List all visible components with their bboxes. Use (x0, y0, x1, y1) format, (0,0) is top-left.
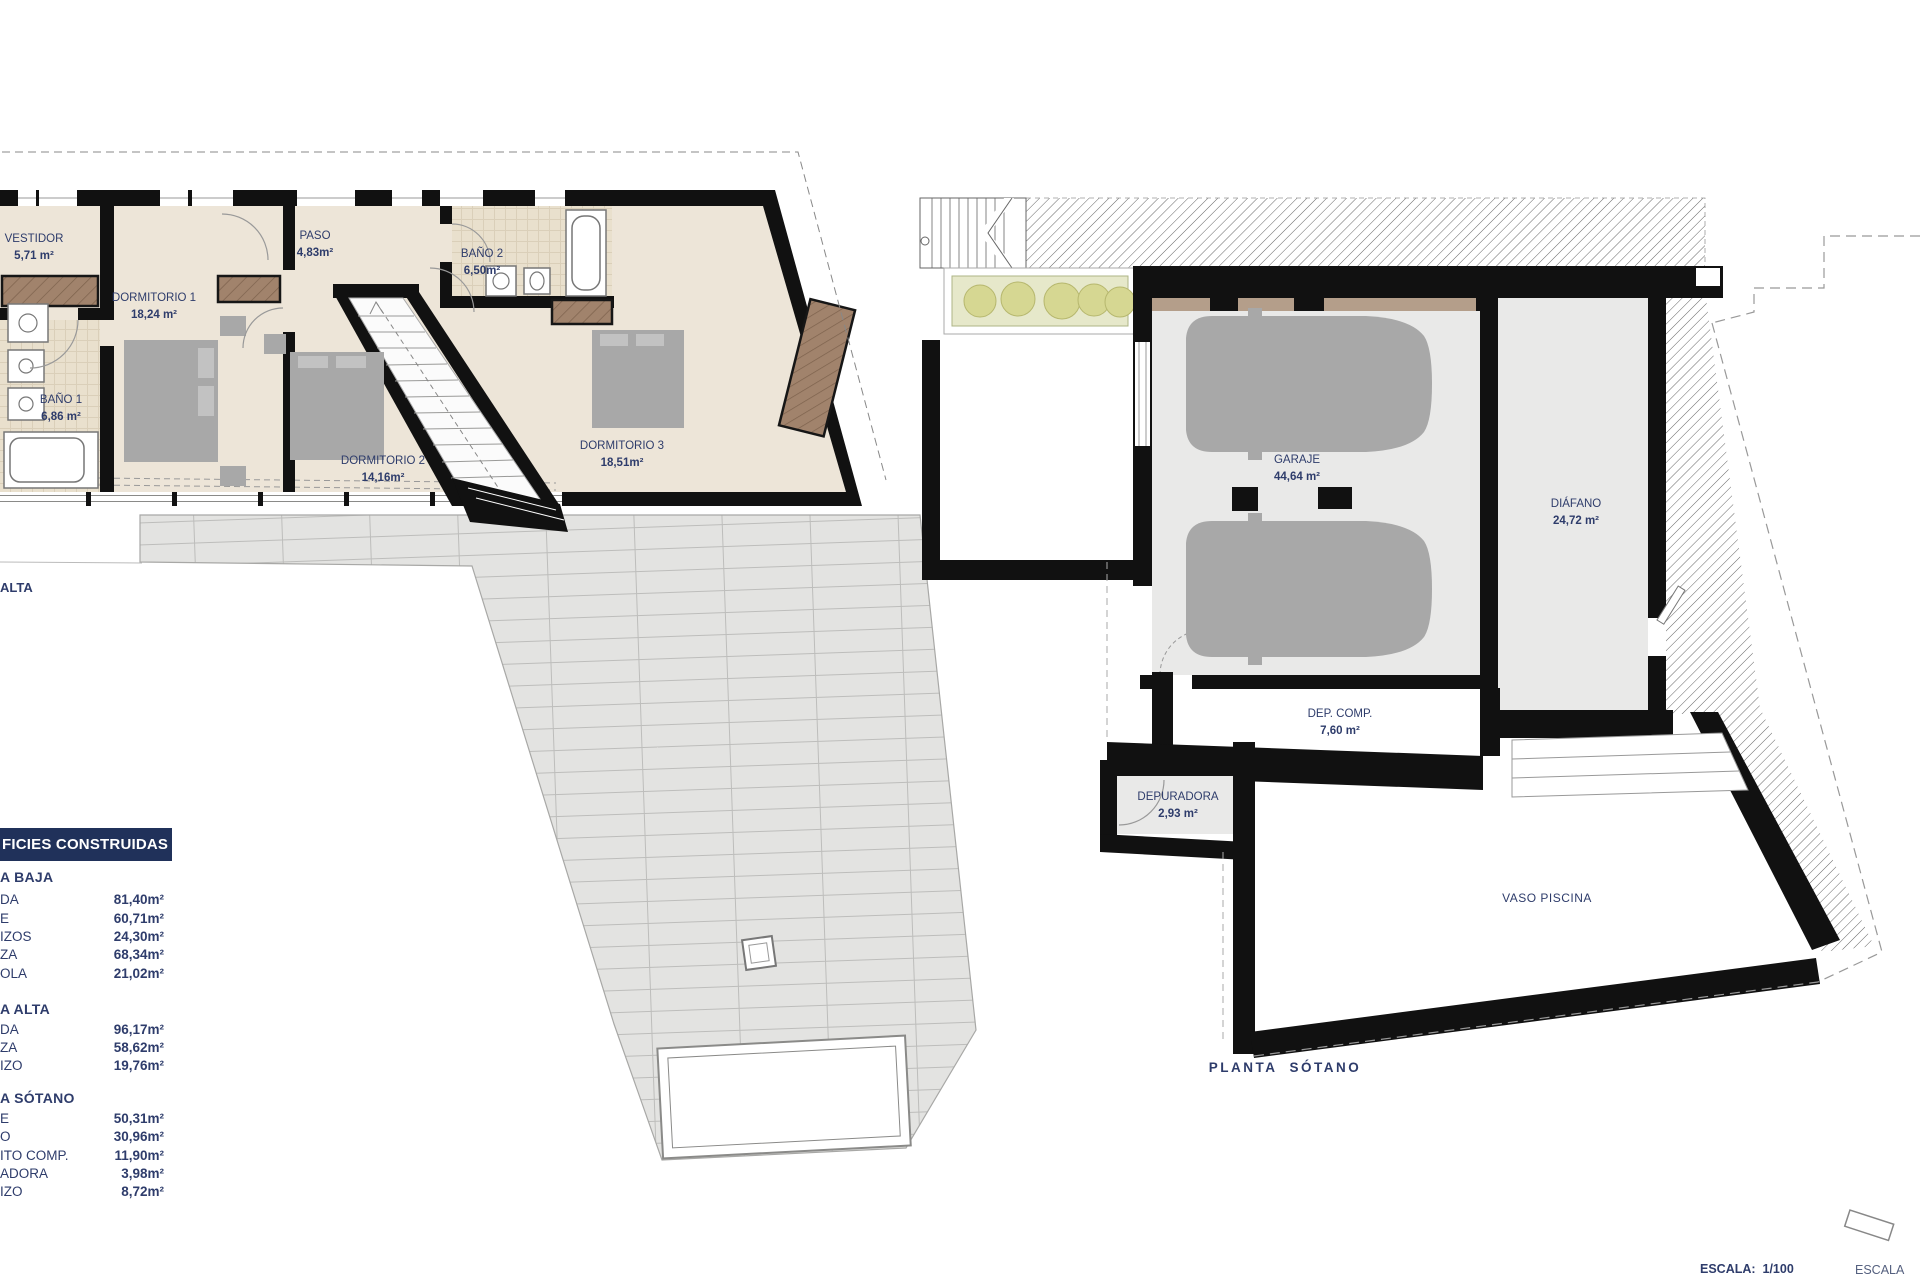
legend-row-label: ITO COMP. (0, 1148, 69, 1163)
legend-row: ZA 58,62m² (0, 1040, 164, 1058)
scale-label-secondary: ESCALA (1855, 1263, 1904, 1277)
room-area: 7,60 m² (1308, 723, 1373, 740)
room-name: VASO PISCINA (1502, 889, 1592, 907)
room-name: DEPURADORA (1137, 789, 1218, 806)
legend-row: O 30,96m² (0, 1129, 164, 1147)
room-area: 18,51m² (580, 455, 664, 472)
room-area: 4,83m² (297, 245, 333, 262)
legend-row: OLA 21,02m² (0, 966, 164, 984)
room-name: PASO (297, 228, 333, 245)
floorplan-drawing (0, 0, 1920, 1280)
legend-row-label: ZA (0, 1040, 17, 1055)
room-area: 6,50m² (461, 263, 503, 280)
legend-heading-baja: A BAJA (0, 869, 53, 885)
room-area: 18,24 m² (112, 307, 196, 324)
legend-row-label: IZOS (0, 929, 32, 944)
room-label-dormitorio-3: DORMITORIO 3 18,51m² (580, 438, 664, 473)
legend-row: IZOS 24,30m² (0, 929, 164, 947)
room-area: 24,72 m² (1551, 513, 1601, 530)
left-plan-title: ALTA (0, 580, 33, 595)
legend-row-label: ADORA (0, 1166, 48, 1181)
room-label-dep-comp: DEP. COMP. 7,60 m² (1308, 706, 1373, 741)
legend-row: E 60,71m² (0, 911, 164, 929)
room-label-depuradora: DEPURADORA 2,93 m² (1137, 789, 1218, 824)
legend-row-value: 81,40m² (114, 892, 164, 907)
room-name: DEP. COMP. (1308, 706, 1373, 723)
right-plan-title: PLANTA SÓTANO (1209, 1060, 1362, 1075)
scale-label: ESCALA: 1/100 (1700, 1262, 1794, 1276)
room-name: DIÁFANO (1551, 496, 1601, 513)
room-name: BAÑO 2 (461, 246, 503, 263)
room-name: BAÑO 1 (40, 392, 82, 409)
room-area: 6,86 m² (40, 409, 82, 426)
legend-row-value: 60,71m² (114, 911, 164, 926)
room-name: DORMITORIO 3 (580, 438, 664, 455)
legend-row: ADORA 3,98m² (0, 1166, 164, 1184)
legend-title-bar: FICIES CONSTRUIDAS (0, 828, 172, 861)
legend-title: FICIES CONSTRUIDAS (2, 836, 168, 853)
legend-row-value: 68,34m² (114, 947, 164, 962)
legend-row: DA 96,17m² (0, 1022, 164, 1040)
room-label-diafano: DIÁFANO 24,72 m² (1551, 496, 1601, 531)
legend-row-label: DA (0, 1022, 19, 1037)
room-name: DORMITORIO 2 (341, 453, 425, 470)
legend-heading-sotano: A SÓTANO (0, 1090, 75, 1106)
legend-row: IZO 8,72m² (0, 1184, 164, 1202)
floorplan-sheet: VESTIDOR 5,71 m² DORMITORIO 1 18,24 m² P… (0, 0, 1920, 1280)
room-area: 5,71 m² (5, 248, 64, 265)
room-label-bano-1: BAÑO 1 6,86 m² (40, 392, 82, 427)
legend-heading-alta: A ALTA (0, 1001, 50, 1017)
legend-row-label: IZO (0, 1184, 23, 1199)
legend-row-label: IZO (0, 1058, 23, 1073)
legend-row: DA 81,40m² (0, 892, 164, 910)
legend-row: IZO 19,76m² (0, 1058, 164, 1076)
legend-row-value: 8,72m² (121, 1184, 164, 1199)
legend-row-value: 3,98m² (121, 1166, 164, 1181)
room-label-bano-2: BAÑO 2 6,50m² (461, 246, 503, 281)
room-area: 2,93 m² (1137, 806, 1218, 823)
legend-row-label: O (0, 1129, 11, 1144)
legend-row-value: 96,17m² (114, 1022, 164, 1037)
legend-row-label: DA (0, 892, 19, 907)
room-name: VESTIDOR (5, 231, 64, 248)
room-label-dormitorio-2: DORMITORIO 2 14,16m² (341, 453, 425, 488)
legend-row-value: 50,31m² (114, 1111, 164, 1126)
room-label-garaje: GARAJE 44,64 m² (1274, 452, 1320, 487)
room-area: 44,64 m² (1274, 469, 1320, 486)
legend-row-value: 19,76m² (114, 1058, 164, 1073)
legend-row: ZA 68,34m² (0, 947, 164, 965)
room-label-vestidor: VESTIDOR 5,71 m² (5, 231, 64, 266)
legend-row-value: 30,96m² (114, 1129, 164, 1144)
legend-row: E 50,31m² (0, 1111, 164, 1129)
legend-row-label: E (0, 1111, 9, 1126)
room-area: 14,16m² (341, 470, 425, 487)
legend-row-label: E (0, 911, 9, 926)
legend-row-label: ZA (0, 947, 17, 962)
legend-row-value: 21,02m² (114, 966, 164, 981)
legend-row: ITO COMP. 11,90m² (0, 1148, 164, 1166)
room-label-dormitorio-1: DORMITORIO 1 18,24 m² (112, 290, 196, 325)
room-label-vaso-piscina: VASO PISCINA (1502, 889, 1592, 907)
legend-row-label: OLA (0, 966, 27, 981)
legend-row-value: 58,62m² (114, 1040, 164, 1055)
legend-row-value: 24,30m² (114, 929, 164, 944)
legend-row-value: 11,90m² (114, 1148, 164, 1163)
room-name: DORMITORIO 1 (112, 290, 196, 307)
room-name: GARAJE (1274, 452, 1320, 469)
room-label-paso: PASO 4,83m² (297, 228, 333, 263)
